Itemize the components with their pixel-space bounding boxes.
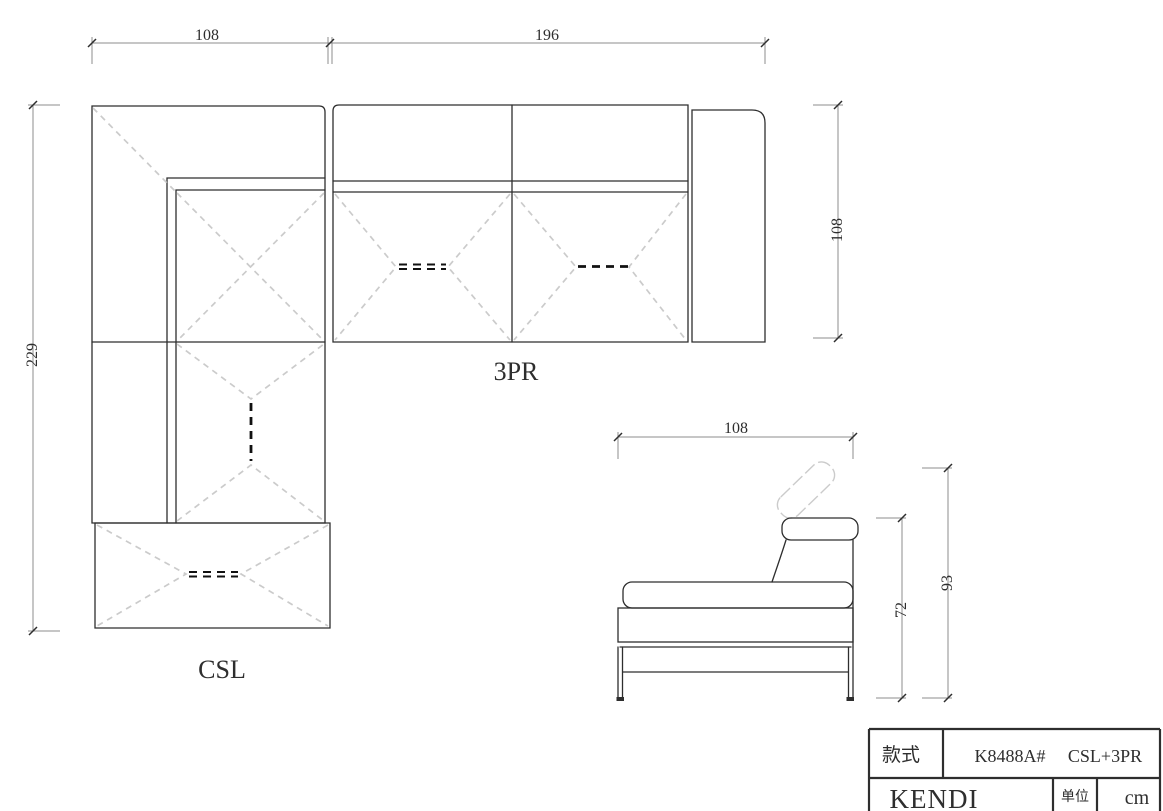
sofa-technical-drawing-canvas: CSL 3PR [0, 0, 1163, 811]
seat-base [618, 608, 853, 642]
backrest-front-slant [772, 540, 786, 582]
seat-cushion [623, 582, 853, 608]
tpr-left-seat-center-marker [399, 265, 446, 270]
csl-backrest-inner-lines [167, 178, 325, 523]
dim-csl-total-depth: 229 [24, 343, 41, 367]
title-block: 款式 K8488A# CSL+3PR KENDI 单位 cm [869, 729, 1160, 811]
tpr-body-outline [333, 105, 688, 342]
dim-tpr-depth: 108 [829, 218, 846, 242]
right-foot [847, 697, 855, 701]
dim-total-height: 93 [939, 575, 956, 591]
left-foot [617, 697, 625, 701]
unit-label: 单位 [1061, 788, 1089, 804]
csl-chaise-outline [95, 523, 330, 628]
tpr-plan-view: 3PR [333, 105, 765, 386]
configuration-code: CSL+3PR [1068, 746, 1142, 766]
plan-dimensions: 108 196 229 108 [24, 27, 846, 635]
tpr-left-seat-cross [335, 194, 510, 340]
csl-chaise-center-marker [189, 572, 238, 577]
dim-side-width: 108 [724, 420, 748, 437]
csl-corner-diagonal-dashed [93, 108, 175, 191]
headrest-cushion [782, 518, 858, 540]
model-code: K8488A# [975, 746, 1046, 766]
csl-upper-seat-cross [177, 193, 324, 341]
unit-value: cm [1125, 787, 1150, 809]
side-elevation-view [617, 457, 859, 701]
headrest-reclined-ghost [773, 457, 839, 522]
tpr-armrest-outline [692, 110, 765, 342]
brand-name: KENDI [890, 784, 979, 811]
tpr-label: 3PR [494, 357, 539, 386]
right-leg [849, 647, 854, 698]
side-dimensions: 108 72 93 [614, 420, 956, 702]
style-label: 款式 [882, 744, 920, 766]
csl-label: CSL [198, 655, 246, 684]
left-leg [618, 647, 623, 698]
technical-drawing-sheet: CSL 3PR [0, 0, 1163, 811]
dim-csl-width: 108 [195, 27, 219, 44]
dim-tpr-width: 196 [535, 27, 559, 44]
csl-outline [92, 106, 325, 523]
top-dim-extensions [92, 37, 765, 64]
dim-seat-back-height: 72 [893, 602, 910, 618]
csl-plan-view: CSL [92, 106, 330, 684]
tpr-backrest-lines [333, 181, 688, 192]
csl-chaise-cross [97, 525, 328, 626]
